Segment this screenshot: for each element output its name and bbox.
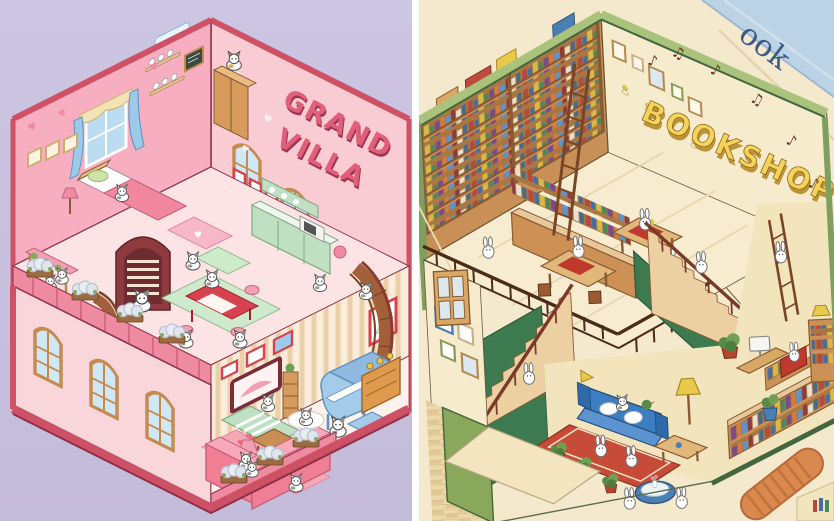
hydrangea-box — [72, 281, 98, 300]
cat-icon — [233, 330, 247, 348]
bunny-icon — [695, 251, 707, 273]
hydrangea-box — [293, 428, 319, 447]
bookshop-illustration: ook — [419, 0, 834, 521]
bunny-icon — [572, 236, 584, 258]
bunny-icon — [482, 237, 494, 259]
cat-icon — [115, 185, 128, 202]
hydrangea-box — [221, 464, 247, 483]
hydrangea-box — [117, 303, 143, 322]
glass-bookcase — [433, 270, 470, 326]
bunny-icon — [789, 342, 800, 362]
cat-icon — [205, 270, 219, 288]
bunny-icon — [775, 241, 787, 263]
hydrangea-box — [257, 446, 283, 465]
bunny-icon — [625, 445, 637, 467]
grand-villa-illustration: ♥ ♥ ♥ GRAND VILLA GRAND VILLA — [0, 0, 412, 521]
hydrangea-box — [27, 258, 53, 277]
hydrangea-box — [159, 324, 185, 343]
tall-shelf — [283, 364, 298, 419]
cat-icon — [56, 268, 69, 284]
cat-icon — [186, 252, 200, 270]
stage: ♥ ♥ ♥ GRAND VILLA GRAND VILLA — [0, 0, 834, 521]
rug-heart: ♥ — [194, 231, 202, 241]
bunny-icon — [523, 363, 535, 385]
panel-divider — [412, 0, 419, 521]
cat-icon — [299, 409, 312, 426]
bunny-icon — [675, 487, 687, 509]
cat-icon — [246, 461, 259, 477]
orange-cat-icon — [227, 52, 242, 71]
cat-icon — [313, 275, 326, 292]
cat-icon — [289, 474, 303, 492]
bunny-icon — [595, 435, 607, 457]
pink-bowl — [334, 246, 346, 258]
cat-icon — [359, 283, 372, 300]
cat-icon — [261, 395, 274, 412]
